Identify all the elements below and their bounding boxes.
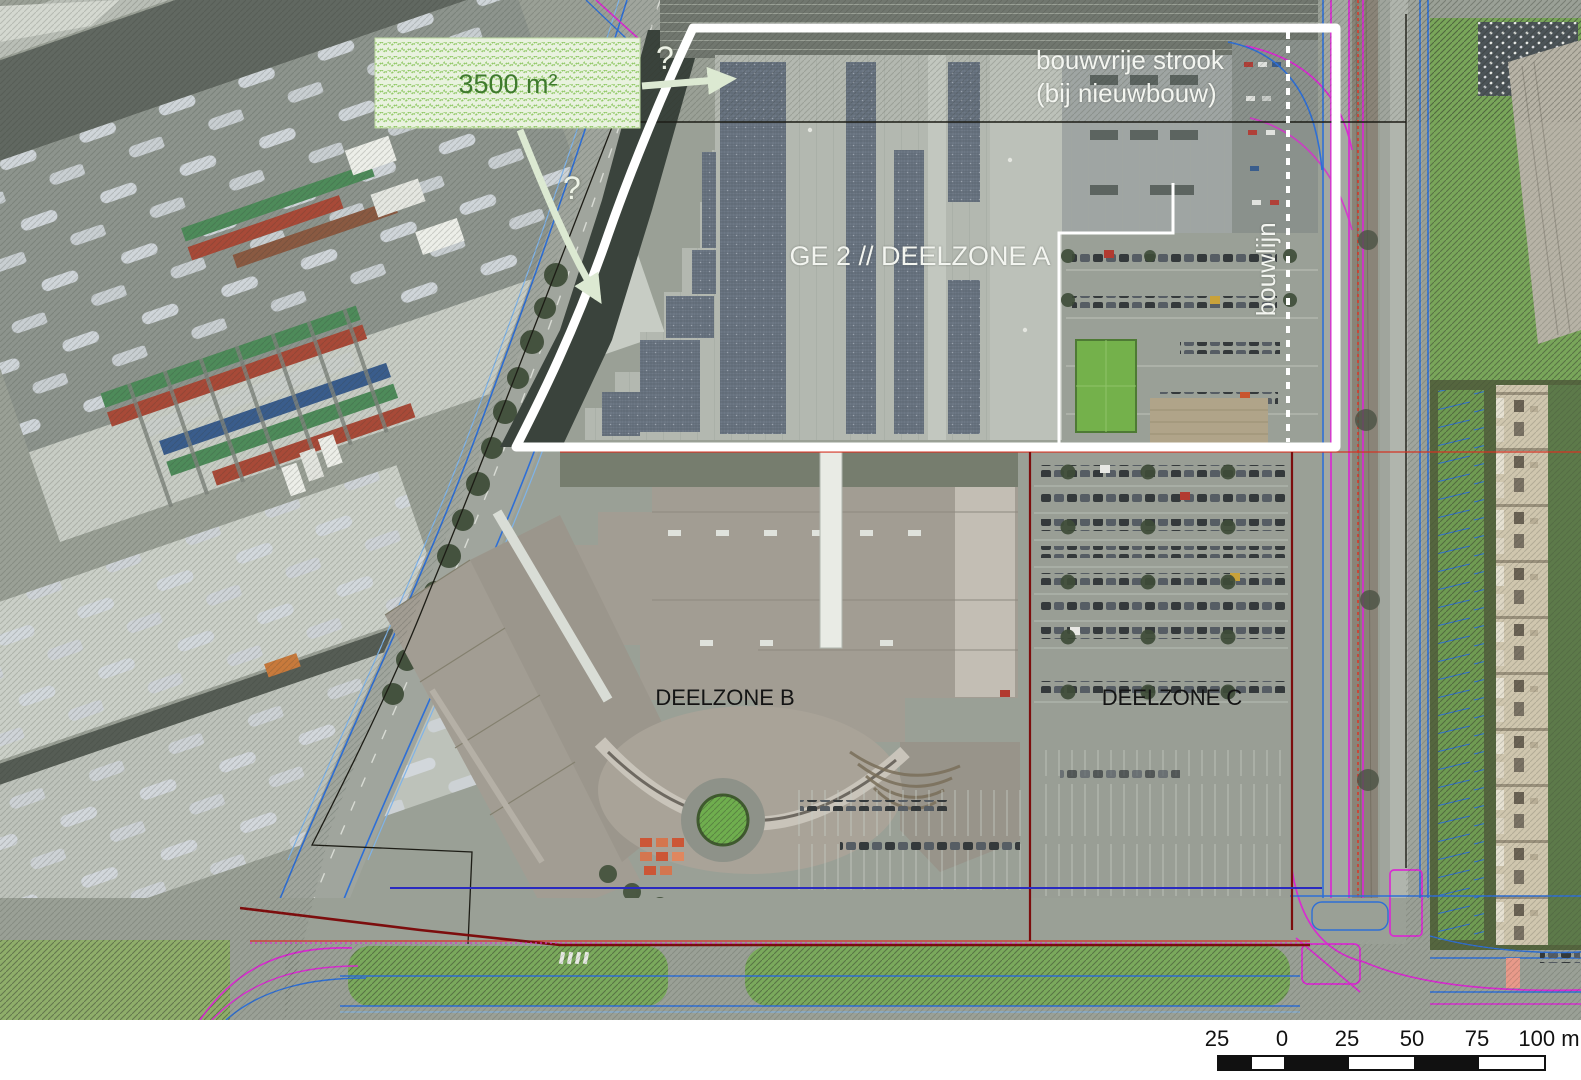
scale-segment	[1479, 1057, 1544, 1069]
pedestrian-bridge	[820, 443, 842, 648]
question-mark-2: ?	[563, 168, 581, 208]
scale-segment	[1219, 1057, 1252, 1069]
scale-tick-label: 25	[1182, 1026, 1252, 1052]
question-mark-1: ?	[656, 38, 674, 78]
scale-tick-label: 50	[1377, 1026, 1447, 1052]
scale-tick-label: 0	[1247, 1026, 1317, 1052]
scale-segment	[1284, 1057, 1349, 1069]
bouwvrije-strook-line1: bouwvrije strook	[1036, 44, 1224, 77]
zone-b-label: DEELZONE B	[625, 684, 825, 712]
scale-segment	[1414, 1057, 1479, 1069]
scale-segment	[1349, 1057, 1414, 1069]
bouwvrije-strook-label: bouwvrije strook (bij nieuwbouw)	[1036, 44, 1224, 109]
zone-a-label: GE 2 // DEELZONE A	[760, 240, 1080, 274]
scale-tick-label: 75	[1442, 1026, 1512, 1052]
scale-unit-label: 100 m	[1514, 1026, 1581, 1052]
bouwvrije-strook-line2: (bij nieuwbouw)	[1036, 77, 1224, 110]
scale-tick-label: 25	[1312, 1026, 1382, 1052]
scale-bar-graphic	[1217, 1055, 1546, 1071]
aerial-map	[0, 0, 1581, 1020]
roundabout	[681, 778, 765, 862]
zone-a-parking	[1061, 233, 1336, 447]
scale-segment	[1252, 1057, 1285, 1069]
area-box-label: 3500 m²	[398, 68, 618, 102]
zoning-map-page: 3500 m² ? ? bouwvrije strook (bij nieuwb…	[0, 0, 1581, 1080]
zone-c-label: DEELZONE C	[1072, 684, 1272, 712]
bouwlijn-label: bouwlijn	[1250, 199, 1283, 339]
